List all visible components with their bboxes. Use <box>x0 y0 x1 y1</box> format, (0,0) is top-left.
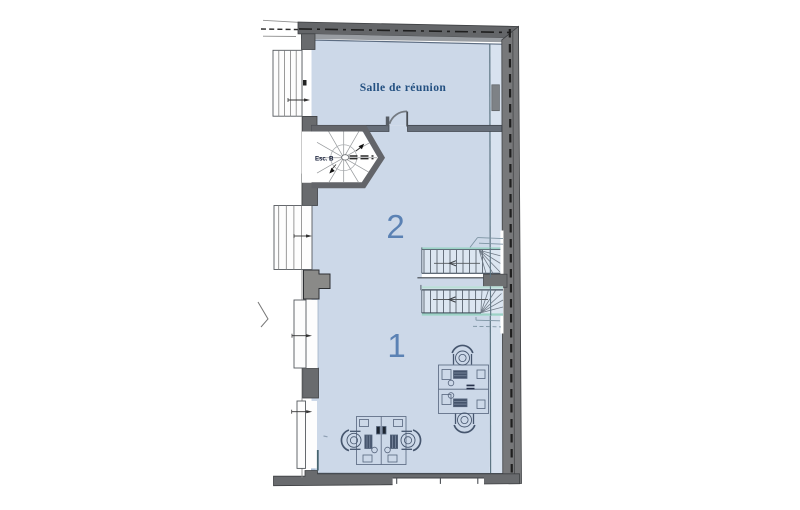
svg-text:2: 2 <box>386 208 404 245</box>
svg-text:Salle de réunion: Salle de réunion <box>360 81 447 94</box>
svg-text:1: 1 <box>387 327 405 364</box>
svg-text:Esc. B: Esc. B <box>315 156 334 163</box>
